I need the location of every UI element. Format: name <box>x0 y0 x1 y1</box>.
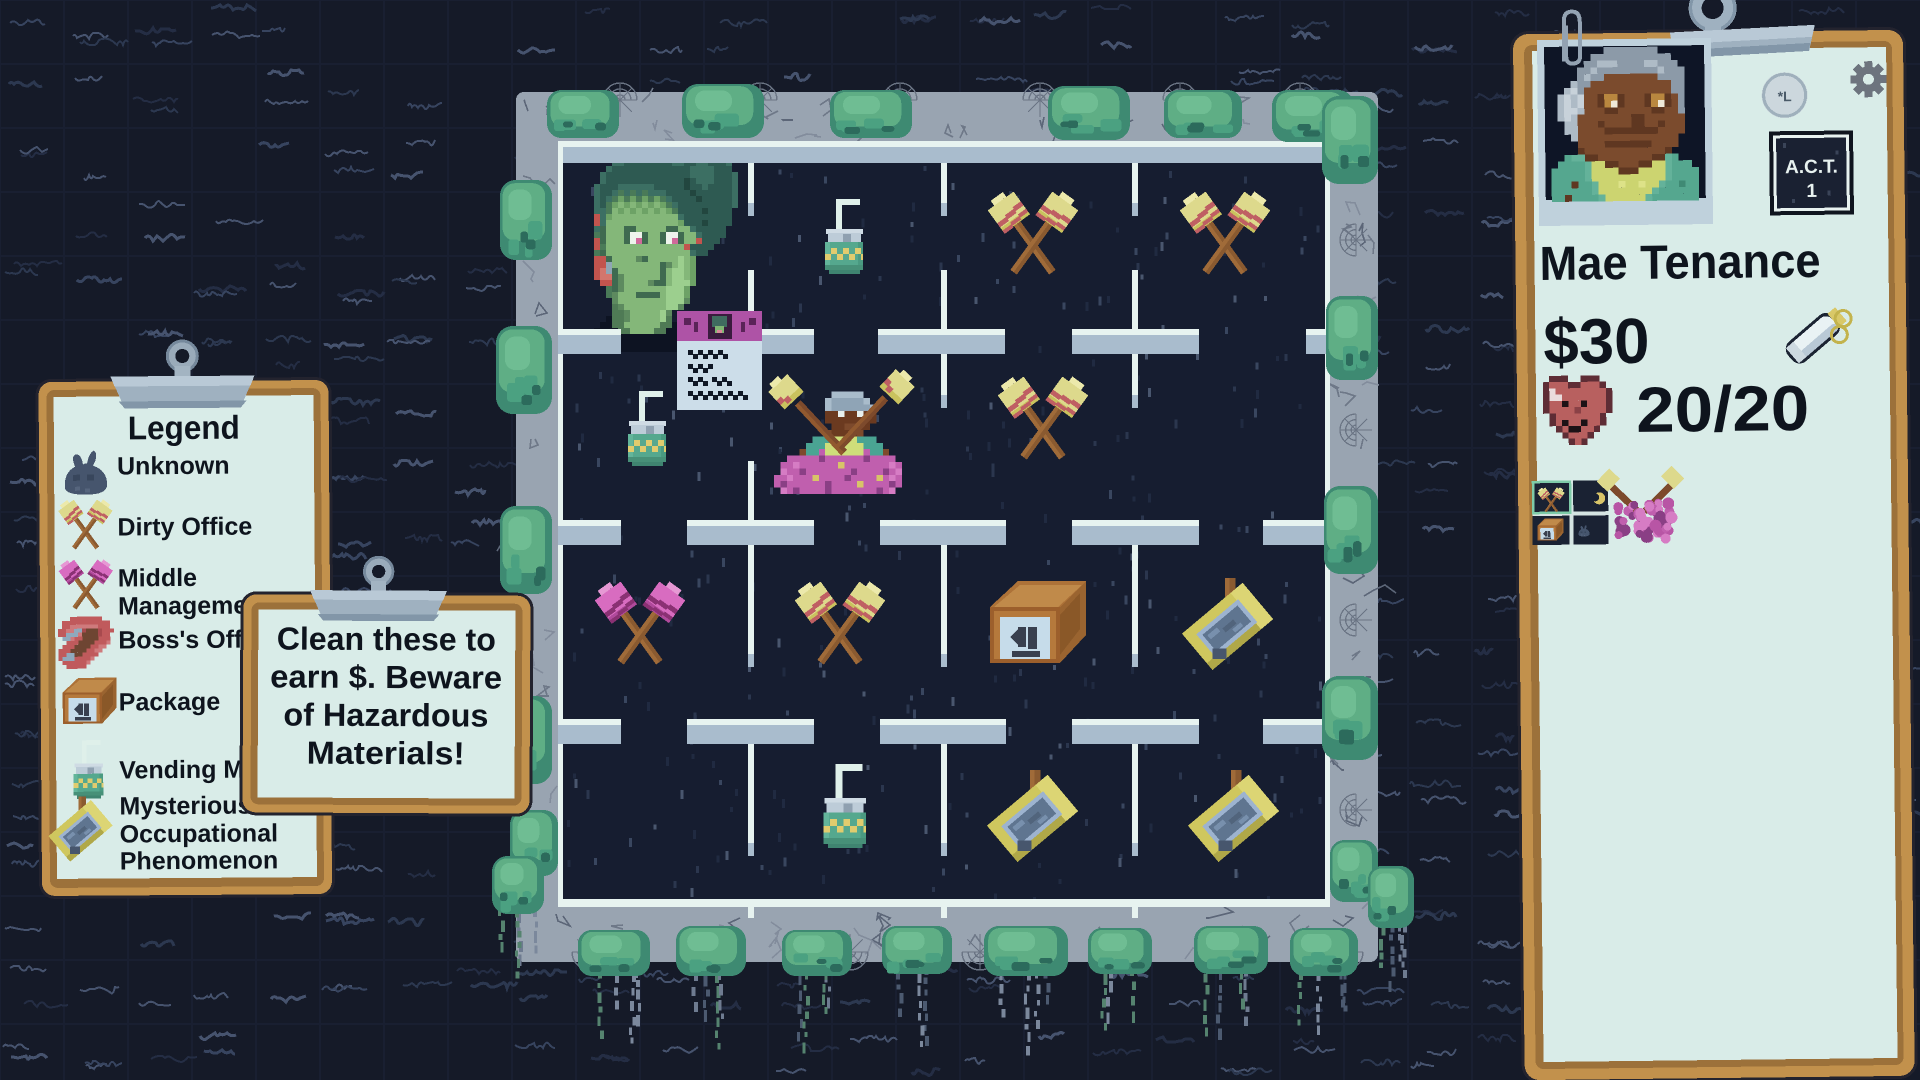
svg-text:Unknown: Unknown <box>117 452 230 481</box>
svg-text:Mae Tenance: Mae Tenance <box>1539 235 1821 291</box>
svg-text:earn $. Beware: earn $. Beware <box>270 658 502 695</box>
svg-text:Package: Package <box>119 688 221 717</box>
svg-text:Clean these to: Clean these to <box>277 620 496 657</box>
svg-text:$30: $30 <box>1543 305 1650 378</box>
svg-text:Legend: Legend <box>128 409 240 447</box>
svg-text:A.C.T.: A.C.T. <box>1785 157 1838 179</box>
svg-text:Middle: Middle <box>118 564 197 593</box>
svg-text:Materials!: Materials! <box>307 735 465 772</box>
svg-text:Occupational: Occupational <box>120 819 279 848</box>
svg-text:Dirty Office: Dirty Office <box>117 513 252 542</box>
svg-text:20/20: 20/20 <box>1636 372 1810 446</box>
svg-text:of Hazardous: of Hazardous <box>283 696 488 733</box>
svg-text:Mysterious: Mysterious <box>119 792 251 821</box>
svg-text:*L: *L <box>1778 88 1793 104</box>
svg-text:Phenomenon: Phenomenon <box>120 846 279 875</box>
svg-text:1: 1 <box>1806 181 1817 202</box>
